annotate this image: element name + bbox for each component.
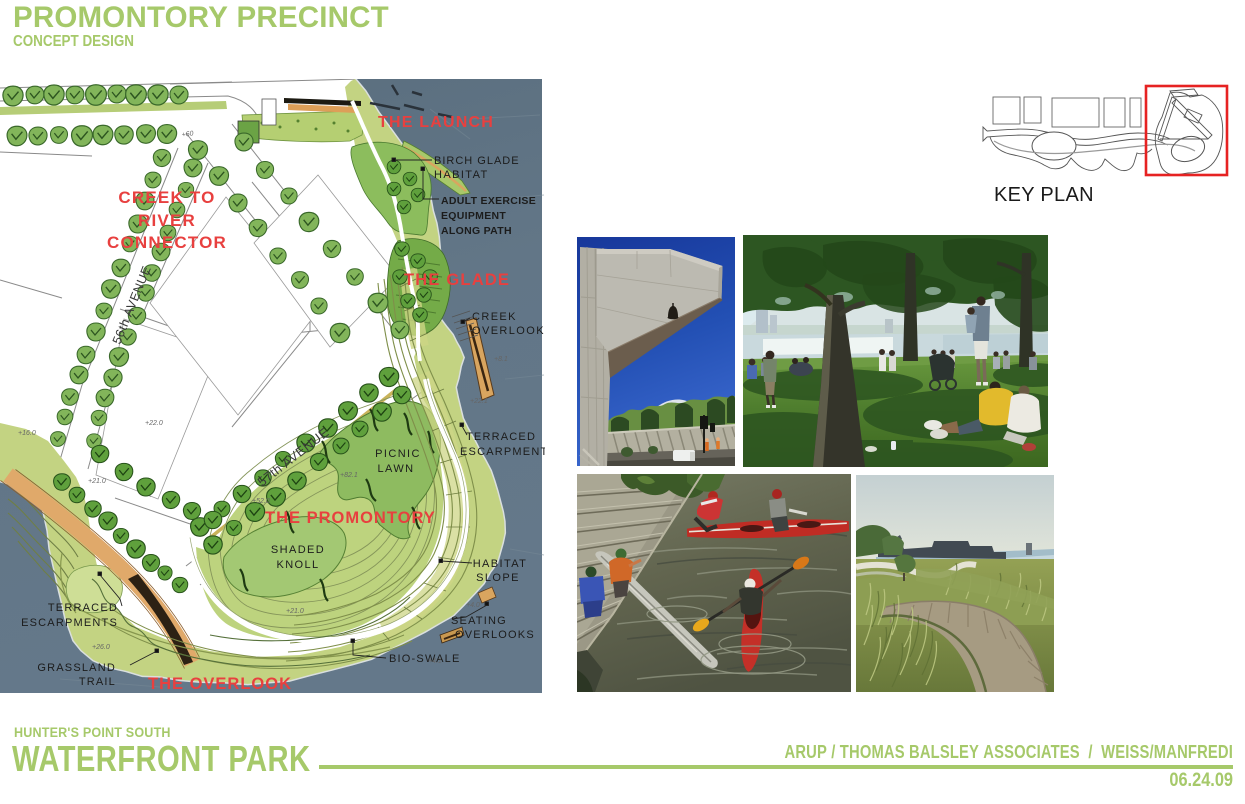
svg-text:OVERLOOK: OVERLOOK — [472, 325, 545, 337]
svg-text:+22.1: +22.1 — [470, 398, 488, 405]
svg-text:+4.0: +4.0 — [466, 602, 480, 609]
svg-text:+82.1: +82.1 — [340, 472, 358, 479]
svg-text:ADULT EXERCISE: ADULT EXERCISE — [441, 195, 536, 207]
svg-text:+21.0: +21.0 — [286, 608, 304, 615]
svg-text:OVERLOOKS: OVERLOOKS — [455, 629, 535, 641]
svg-text:+8.1: +8.1 — [494, 356, 508, 363]
svg-text:HABITAT: HABITAT — [473, 558, 528, 570]
svg-text:THE GLADE: THE GLADE — [404, 271, 510, 289]
svg-text:SLOPE: SLOPE — [476, 572, 520, 584]
svg-text:THE LAUNCH: THE LAUNCH — [378, 114, 494, 131]
svg-text:+52.0: +52.0 — [252, 498, 270, 505]
svg-text:GRASSLAND: GRASSLAND — [37, 662, 116, 674]
svg-text:THE PROMONTORY: THE PROMONTORY — [265, 509, 436, 527]
svg-text:KNOLL: KNOLL — [276, 559, 319, 571]
svg-text:RIVER: RIVER — [138, 211, 196, 230]
svg-text:LAWN: LAWN — [378, 463, 415, 475]
svg-text:+4.1: +4.1 — [428, 658, 442, 665]
svg-text:ALONG PATH: ALONG PATH — [441, 225, 512, 237]
svg-text:PICNIC: PICNIC — [375, 448, 421, 460]
svg-text:SHADED: SHADED — [271, 544, 325, 556]
svg-text:CREEK TO: CREEK TO — [118, 188, 215, 207]
svg-text:SEATING: SEATING — [451, 615, 507, 627]
svg-text:CONNECTOR: CONNECTOR — [107, 233, 227, 252]
svg-text:TERRACED: TERRACED — [466, 431, 536, 443]
svg-text:+21.0: +21.0 — [88, 478, 106, 485]
svg-text:+22.0: +22.0 — [145, 420, 163, 427]
svg-text:+26.0: +26.0 — [92, 644, 110, 651]
svg-text:EQUIPMENT: EQUIPMENT — [441, 210, 506, 222]
svg-text:BIRCH GLADE: BIRCH GLADE — [434, 155, 520, 167]
svg-text:TRAIL: TRAIL — [79, 676, 116, 688]
svg-text:THE OVERLOOK: THE OVERLOOK — [148, 675, 292, 693]
svg-text:BIO-SWALE: BIO-SWALE — [389, 653, 461, 665]
svg-text:ESCARPMENTS: ESCARPMENTS — [460, 446, 545, 458]
svg-text:ESCARPMENTS: ESCARPMENTS — [21, 617, 118, 629]
svg-text:HABITAT: HABITAT — [434, 169, 489, 181]
svg-text:+16.0: +16.0 — [18, 430, 36, 437]
svg-text:TERRACED: TERRACED — [48, 602, 118, 614]
svg-text:CREEK: CREEK — [472, 311, 517, 323]
